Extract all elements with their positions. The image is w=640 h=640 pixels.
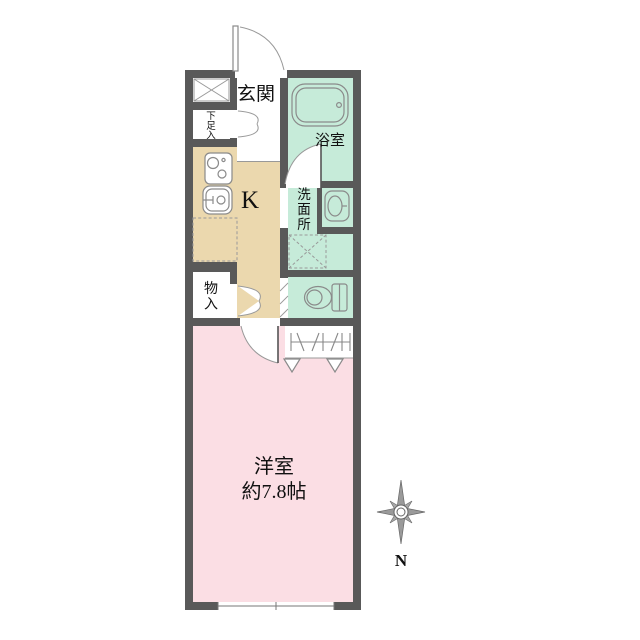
vanity-bottom-wall xyxy=(317,227,361,234)
western-room-size-label: 約7.8帖 xyxy=(242,480,307,503)
floorplan-svg: 玄関 下足入 浴室 K 洗面所 物入 洋室 約7.8帖 N xyxy=(0,0,640,640)
washroom-label: 洗面所 xyxy=(297,187,311,232)
floorplan-page: 玄関 下足入 浴室 K 洗面所 物入 洋室 約7.8帖 N xyxy=(0,0,640,640)
compass-north-label: N xyxy=(395,551,408,570)
entrance-opening xyxy=(235,70,287,78)
entrance-door xyxy=(233,26,284,71)
storage-label: 物入 xyxy=(204,281,218,313)
washroom-doorway xyxy=(280,188,288,228)
stove-icon xyxy=(205,153,232,184)
compass-icon xyxy=(377,480,425,544)
main-room-doorway xyxy=(240,318,280,326)
kitchen-sink-icon xyxy=(203,186,232,214)
bathroom-label: 浴室 xyxy=(315,132,345,149)
vanity-divider-wall xyxy=(317,188,322,228)
genkan-label: 玄関 xyxy=(237,83,275,105)
western-room-label: 洋室 xyxy=(254,455,294,478)
kitchen-label: K xyxy=(241,187,259,214)
shoe-door-opening xyxy=(230,110,237,138)
shoe-storage-label: 下足入 xyxy=(206,112,216,142)
toilet-floor xyxy=(288,277,353,318)
storage-door-opening xyxy=(230,284,237,318)
